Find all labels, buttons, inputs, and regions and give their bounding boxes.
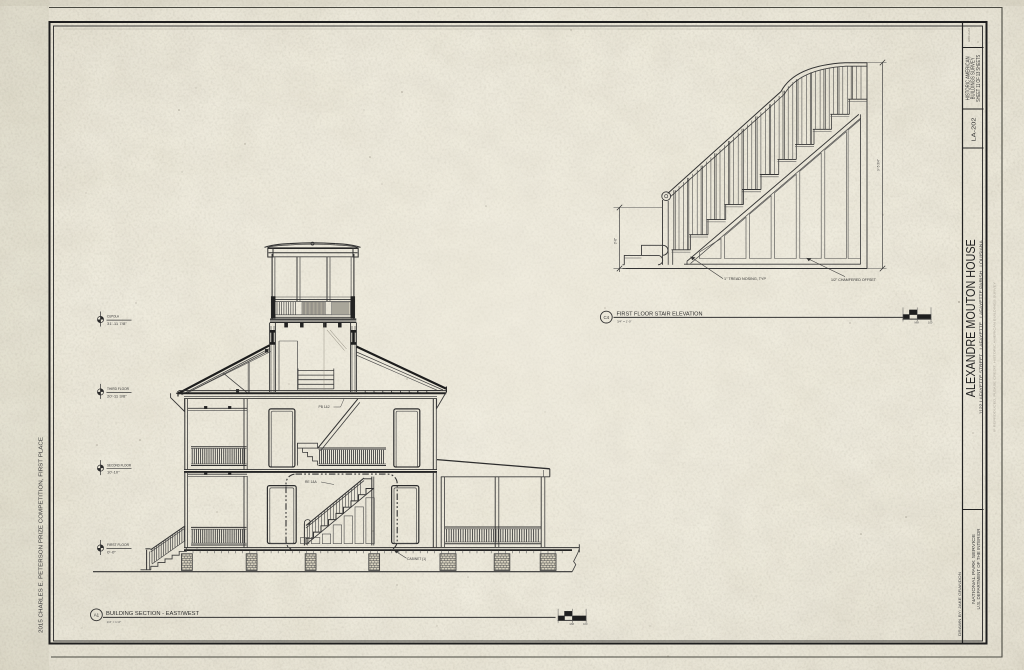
svg-text:CUPOLA: CUPOLA — [107, 315, 119, 319]
svg-text:100: 100 — [583, 622, 588, 626]
svg-text:U.S. DEPARTMENT OF THE INTERIO: U.S. DEPARTMENT OF THE INTERIOR — [976, 528, 982, 610]
svg-text:1/4" = 1'-0": 1/4" = 1'-0" — [107, 620, 122, 624]
svg-text:2015 CHARLES E. PETERSON PRIZE: 2015 CHARLES E. PETERSON PRIZE COMPETITI… — [38, 437, 44, 633]
svg-text:HABS LA-202: HABS LA-202 — [967, 28, 971, 42]
svg-text:0'-0": 0'-0" — [107, 550, 117, 554]
svg-text:SHEET 11 OF 13 SHEETS: SHEET 11 OF 13 SHEETS — [976, 54, 982, 102]
svg-text:SECOND FLOOR: SECOND FLOOR — [107, 463, 131, 467]
svg-text:PB 1&2: PB 1&2 — [319, 405, 330, 409]
svg-text:MM: MM — [915, 321, 919, 325]
svg-text:LA-202: LA-202 — [972, 117, 978, 141]
svg-text:3/4" = 1'-0": 3/4" = 1'-0" — [617, 320, 632, 324]
svg-text:C4: C4 — [603, 315, 609, 320]
svg-text:BUILDING SECTION - EAST/WEST: BUILDING SECTION - EAST/WEST — [106, 611, 199, 617]
svg-text:FIRST FLOOR: FIRST FLOOR — [107, 543, 129, 547]
svg-text:31'-11 7/8": 31'-11 7/8" — [107, 322, 128, 326]
svg-text:9'-5 3/4": 9'-5 3/4" — [877, 159, 881, 171]
svg-text:CABINET (1): CABINET (1) — [407, 557, 426, 561]
svg-text:THIRD FLOOR: THIRD FLOOR — [107, 387, 129, 391]
svg-text:RE 1&A: RE 1&A — [305, 480, 318, 484]
svg-text:ALEXANDRE MOUTON HOUSE: ALEXANDRE MOUTON HOUSE — [963, 239, 978, 397]
svg-text:20'-11 3/8": 20'-11 3/8" — [107, 394, 128, 398]
svg-text:1" TREAD NOSING, TYP: 1" TREAD NOSING, TYP — [724, 277, 767, 281]
svg-text:1/2" CHAMFERED OFFSET: 1/2" CHAMFERED OFFSET — [831, 278, 877, 282]
svg-text:MM: MM — [570, 622, 574, 626]
svg-text:A1: A1 — [94, 613, 100, 618]
svg-text:10'-10": 10'-10" — [107, 471, 121, 475]
svg-text:100: 100 — [928, 321, 933, 325]
svg-text:DRAWN BY: JAKE GRANDON: DRAWN BY: JAKE GRANDON — [957, 572, 962, 636]
svg-text:FIRST FLOOR STAIR ELEVATION: FIRST FLOOR STAIR ELEVATION — [617, 312, 703, 318]
svg-text:1122 LAFAYETTE STREET LAFAYE: 1122 LAFAYETTE STREET LAFAYETTE LAFAYETT… — [978, 239, 984, 414]
svg-text:3'-6": 3'-6" — [614, 238, 618, 244]
svg-text:IF REPRODUCED, PLEASE CREDIT:: IF REPRODUCED, PLEASE CREDIT: HISTORIC A… — [993, 282, 997, 432]
